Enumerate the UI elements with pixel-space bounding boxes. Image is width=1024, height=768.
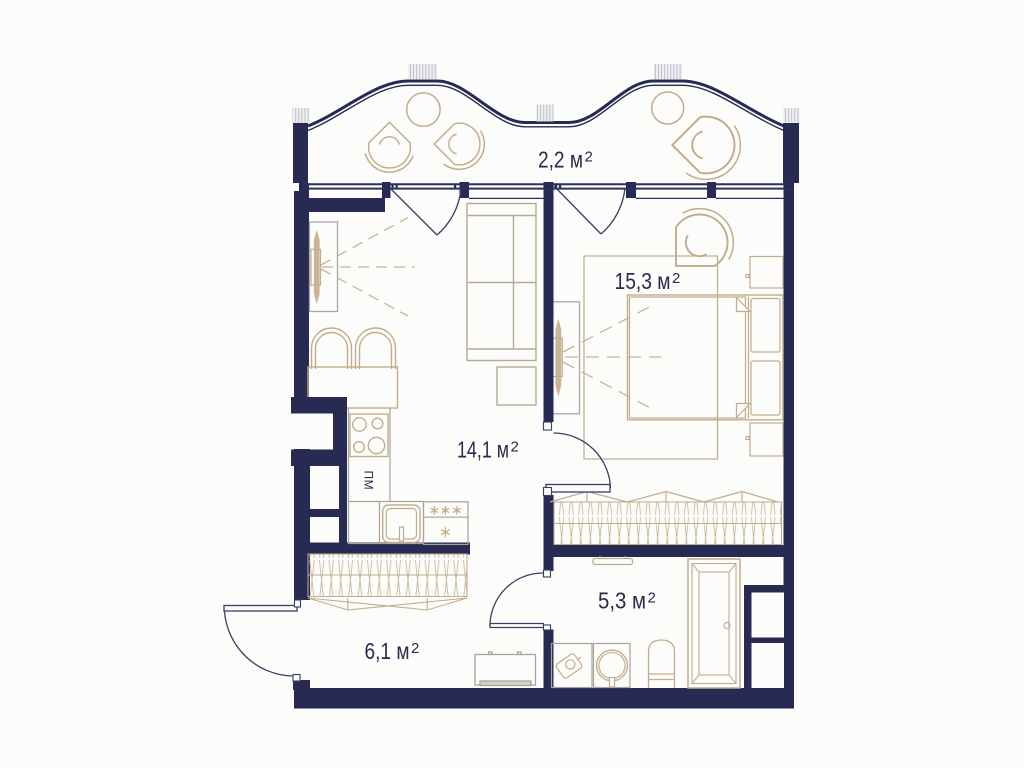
svg-text:2: 2 <box>648 589 656 606</box>
svg-text:6,1 м: 6,1 м <box>365 638 410 664</box>
svg-text:5,3 м: 5,3 м <box>598 588 646 614</box>
svg-text:14,1 м: 14,1 м <box>457 437 509 463</box>
svg-text:2,2 м: 2,2 м <box>538 147 583 173</box>
svg-text:2: 2 <box>672 270 680 287</box>
svg-text:ПМ: ПМ <box>362 471 376 491</box>
svg-text:15,3 м: 15,3 м <box>615 268 671 294</box>
svg-text:2: 2 <box>585 148 593 165</box>
svg-text:2: 2 <box>411 640 419 657</box>
svg-text:2: 2 <box>511 438 519 455</box>
